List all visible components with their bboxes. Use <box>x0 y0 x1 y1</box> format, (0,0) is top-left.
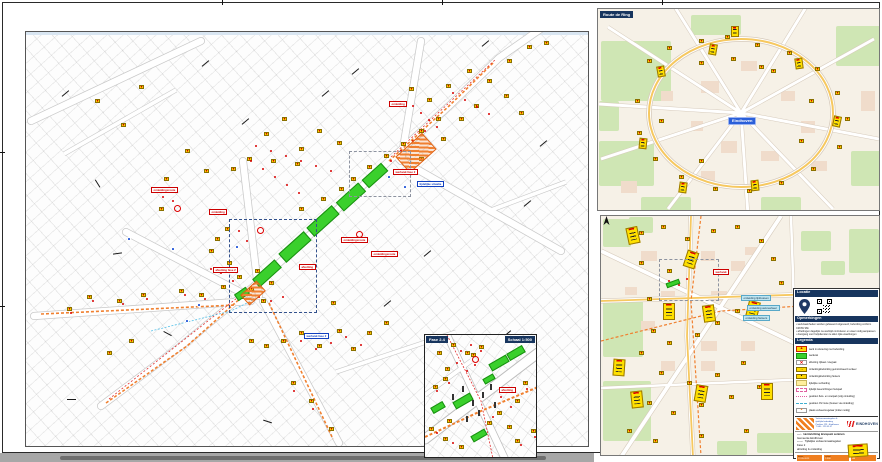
traffic-sign-marker <box>95 99 100 103</box>
traffic-light-marker <box>482 392 484 398</box>
traffic-sign-marker <box>679 175 684 179</box>
ring-map: Route de Ring Eindhoven <box>597 8 880 211</box>
traffic-sign-marker <box>653 439 658 443</box>
traffic-sign-marker <box>729 395 734 399</box>
traffic-sign-marker <box>725 35 730 39</box>
traffic-sign-marker <box>129 339 134 343</box>
barrier-marker <box>286 184 289 187</box>
traffic-sign-marker <box>651 329 656 333</box>
traffic-sign-marker <box>731 57 736 61</box>
barrier-marker <box>436 390 439 393</box>
traffic-sign-marker <box>497 411 502 415</box>
legend-item: werkvak <box>796 353 878 360</box>
inset-scale-label: Schaal 1:500 <box>505 336 535 343</box>
legend-item: •plaats verkeersregelaar (indien nodig) <box>796 407 878 414</box>
barrier-marker <box>300 160 303 163</box>
client-name: EINDHOVEN <box>856 422 878 426</box>
traffic-sign-marker <box>295 162 300 166</box>
pink-dash-icon <box>796 388 807 392</box>
traffic-sign-marker <box>639 351 644 355</box>
north-arrow-icon <box>601 216 612 227</box>
traffic-sign-marker <box>811 167 816 171</box>
traffic-sign-marker <box>699 159 704 163</box>
redx-icon: ✕ <box>796 360 807 365</box>
legend-item: ✕afzetting rijbaan / wegvak <box>796 359 878 366</box>
barrier-marker <box>146 298 149 301</box>
traffic-sign-marker <box>337 141 342 145</box>
omleiding-sign-marker <box>625 225 640 244</box>
closure-circle-marker <box>472 356 479 363</box>
map-annotation-label: omleiding fietsers <box>743 315 770 321</box>
traffic-sign-marker <box>713 187 718 191</box>
orange-dot-icon: • <box>796 408 807 413</box>
legend-item: •omleidingsbebording fietsers <box>796 373 878 380</box>
traffic-sign-marker <box>809 99 814 103</box>
traffic-sign-marker <box>779 281 784 285</box>
barrier-marker <box>210 268 213 271</box>
project-label: werk: <box>797 434 802 436</box>
traffic-light-marker <box>466 416 468 422</box>
work-zone <box>482 373 495 384</box>
traffic-sign-marker <box>445 367 450 371</box>
legend-item: ▲werk in uitvoering met bebording <box>796 346 878 353</box>
barrier-marker <box>520 444 523 447</box>
barrier-marker <box>345 336 348 339</box>
legend-item-label: tijdelijke verharding <box>809 382 830 385</box>
traffic-light-marker <box>490 384 492 390</box>
traffic-sign-marker <box>429 427 434 431</box>
traffic-sign-marker <box>249 339 254 343</box>
map-annotation-label: omleiding lijnbussen <box>741 295 771 301</box>
work-zone <box>506 345 526 361</box>
barrier-marker <box>285 155 288 158</box>
traffic-sign-marker <box>845 117 850 121</box>
traffic-sign-marker <box>291 381 296 385</box>
barrier-marker <box>122 303 125 306</box>
legend-item-label: gesloten OV-route (bussen via omleiding) <box>809 402 854 405</box>
street-name-mark <box>95 179 101 187</box>
traffic-sign-marker <box>659 371 664 375</box>
legend-item-label: plaats verkeersregelaar (indien nodig) <box>809 409 850 412</box>
barrier-marker <box>456 362 459 365</box>
route-shield-marker <box>185 319 189 323</box>
traffic-sign-marker <box>759 65 764 69</box>
traffic-sign-marker <box>735 309 740 313</box>
traffic-sign-marker <box>779 181 784 185</box>
legend-item: gesloten fiets- en voetpad (volg omleidi… <box>796 393 878 400</box>
street-name-mark <box>322 90 330 97</box>
traffic-sign-marker <box>139 85 144 89</box>
closure-circle-marker <box>174 205 181 212</box>
traffic-sign-marker <box>699 434 704 438</box>
legend-item-label: omleidingsbebording fietsers <box>809 375 840 378</box>
map-annotation-label: omleiding <box>209 209 227 215</box>
traffic-sign-marker <box>667 341 672 345</box>
map-annotation-label: omleiding <box>389 101 407 107</box>
traffic-sign-marker <box>639 261 644 265</box>
traffic-sign-marker <box>221 285 226 289</box>
traffic-sign-marker <box>687 381 692 385</box>
traffic-sign-marker <box>519 111 524 115</box>
notes-list: • werkzaamheden worden gefaseerd uitgevo… <box>796 323 878 337</box>
legend-item-label: afzetting rijbaan / wegvak <box>809 361 837 364</box>
traffic-sign-marker <box>321 197 326 201</box>
legend-column: Locatie Opmerkingen • werkzaamheden word… <box>793 288 880 459</box>
street-name-mark <box>540 140 548 147</box>
title-block-logos: Verkeersmaatregelen & tijdelijke bebordi… <box>795 417 878 432</box>
barrier-marker <box>184 294 187 297</box>
legenda-header: Legenda <box>795 338 878 345</box>
eindhoven-logo-icon <box>847 421 855 427</box>
traffic-sign-marker <box>667 46 672 50</box>
ring-marker-layer <box>598 9 879 210</box>
barrier-marker <box>204 298 207 301</box>
work-zone <box>470 428 487 442</box>
traffic-sign-marker <box>281 339 286 343</box>
traffic-sign-marker <box>433 385 438 389</box>
barrier-marker <box>464 99 467 102</box>
traffic-sign-marker <box>67 307 72 311</box>
barrier-marker <box>70 312 73 315</box>
barrier-marker <box>534 436 537 439</box>
barrier-marker <box>510 406 513 409</box>
traffic-sign-marker <box>755 43 760 47</box>
barrier-marker <box>300 340 303 343</box>
map-annotation-label: werkvak fase 2 <box>393 169 418 175</box>
traffic-sign-marker <box>215 237 220 241</box>
barrier-marker <box>315 165 318 168</box>
work-zone <box>488 355 509 372</box>
traffic-light-marker <box>452 394 454 400</box>
omleiding-sign-marker <box>794 57 803 69</box>
pink-dot-icon <box>796 396 807 397</box>
map-pin-icon <box>799 299 810 314</box>
barrier-marker <box>474 364 477 367</box>
traffic-sign-marker <box>635 99 640 103</box>
work-zone <box>430 400 446 413</box>
traffic-sign-marker <box>815 67 820 71</box>
company-address: Verkeersmaatregelen & tijdelijke bebordi… <box>816 418 845 428</box>
locatie-header: Locatie <box>795 290 878 297</box>
traffic-sign-marker <box>107 351 112 355</box>
omleiding-sign-marker <box>678 181 687 193</box>
traffic-sign-marker <box>185 149 190 153</box>
note-line: • werkzaamheden worden gefaseerd uitgevo… <box>796 323 878 330</box>
route-shield-marker <box>171 247 175 251</box>
barrier-marker <box>488 113 491 116</box>
traffic-sign-marker <box>264 132 269 136</box>
barrier-marker <box>298 192 301 195</box>
traffic-sign-marker <box>531 429 536 433</box>
fold-tick <box>662 0 663 5</box>
field-datum: datum12-05-2023 <box>796 454 823 462</box>
traffic-sign-marker <box>659 119 664 123</box>
traffic-sign-marker <box>647 297 652 301</box>
drawing-sheet: omleidingsrouteafzetting fase 2omleiding… <box>0 0 882 462</box>
street-name-mark <box>263 420 272 424</box>
traffic-sign-marker <box>647 401 652 405</box>
barrier-marker <box>436 126 439 129</box>
legend-item-label: werkvak <box>809 354 818 357</box>
sign-fiets-icon: • <box>796 374 807 379</box>
map-annotation-label: omleidingsroute <box>151 187 178 193</box>
traffic-sign-marker <box>467 69 472 73</box>
traffic-sign-marker <box>507 425 512 429</box>
company-line: T 040 - 123 45 67 <box>816 426 845 429</box>
traffic-sign-marker <box>159 207 164 211</box>
barrier-marker <box>172 200 175 203</box>
barrier-marker <box>315 348 318 351</box>
client-logo: EINDHOVEN <box>847 421 878 427</box>
traffic-sign-marker <box>459 117 464 121</box>
omleiding-sign-marker <box>638 137 647 149</box>
legend-item-label: werk in uitvoering met bebording <box>809 348 844 351</box>
omleiding-sign-marker <box>731 26 739 37</box>
traffic-sign-marker <box>544 41 549 45</box>
traffic-sign-marker <box>443 377 448 381</box>
street-name-mark <box>384 300 392 307</box>
opmerkingen-header: Opmerkingen <box>795 316 878 323</box>
traffic-sign-marker <box>771 69 776 73</box>
traffic-sign-marker <box>204 169 209 173</box>
traffic-sign-marker <box>653 157 658 161</box>
route-shield-marker <box>127 237 131 241</box>
ring-map-title: Route de Ring <box>600 11 633 18</box>
traffic-sign-marker <box>637 131 642 135</box>
legend-item-label: tijdelijk tweerichtingen fietspad <box>809 388 842 391</box>
map-annotation-label: werkvak fase 2 <box>304 333 329 339</box>
street-name-mark <box>524 200 532 207</box>
traffic-sign-marker <box>459 445 464 449</box>
traffic-sign-marker <box>209 249 214 253</box>
barrier-marker <box>480 350 483 353</box>
traffic-sign-marker <box>465 351 470 355</box>
traffic-sign-marker <box>282 117 287 121</box>
map-annotation-label: afzetting <box>299 264 316 270</box>
traffic-light-marker <box>472 400 474 406</box>
barrier-marker <box>500 396 503 399</box>
traffic-sign-marker <box>271 159 276 163</box>
barrier-marker <box>412 105 415 108</box>
cyan-dash-icon <box>796 403 807 404</box>
locatie-body <box>795 298 878 315</box>
traffic-light-marker <box>494 402 496 408</box>
traffic-sign-marker <box>447 419 452 423</box>
traffic-sign-marker <box>661 225 666 229</box>
example-omleiding-sign <box>848 443 869 457</box>
traffic-sign-marker <box>337 329 342 333</box>
traffic-sign-marker <box>441 137 446 141</box>
street-name-mark <box>242 118 250 125</box>
contractor-logo <box>796 418 814 430</box>
project-title: Herinrichting kruispunt centrum <box>803 433 844 436</box>
barrier-marker <box>270 150 273 153</box>
note-line: • doorgang voor hulpdiensten te allen ti… <box>796 333 878 336</box>
traffic-sign-marker <box>299 331 304 335</box>
traffic-sign-marker <box>741 361 746 365</box>
legend-list: ▲werk in uitvoering met bebordingwerkvak… <box>796 346 878 414</box>
traffic-sign-marker <box>759 239 764 243</box>
traffic-sign-marker <box>331 301 336 305</box>
traffic-sign-marker <box>837 145 842 149</box>
traffic-sign-marker <box>317 344 322 348</box>
traffic-sign-marker <box>715 321 720 325</box>
map-annotation-label: werkvak <box>713 269 729 275</box>
field-label: datum <box>798 456 821 458</box>
traffic-sign-marker <box>515 439 520 443</box>
traffic-sign-marker <box>479 345 484 349</box>
inset-phase-label: Fase 2.4 <box>426 336 448 343</box>
map-annotation-label: omleidingsroute <box>371 251 398 257</box>
barrier-marker <box>436 432 439 435</box>
traffic-sign-marker <box>317 129 322 133</box>
traffic-sign-marker <box>164 177 169 181</box>
map-annotation-label: omleiding autoverkeer <box>747 305 780 311</box>
traffic-sign-marker <box>699 61 704 65</box>
barrier-marker <box>250 160 253 163</box>
traffic-sign-marker <box>639 231 644 235</box>
fold-tick <box>442 0 443 5</box>
traffic-sign-marker <box>121 123 126 127</box>
barrier-marker <box>420 112 423 115</box>
traffic-sign-marker <box>771 257 776 261</box>
traffic-sign-marker <box>443 437 448 441</box>
traffic-sign-marker <box>427 98 432 102</box>
omleiding-sign-marker <box>663 303 675 320</box>
phase-inset-map: afzetting Fase 2.4 Schaal 1:500 <box>424 334 537 458</box>
street-name-mark <box>113 252 122 255</box>
qr-code <box>817 299 832 314</box>
street-name-mark <box>202 60 210 67</box>
paleyellow-icon <box>796 380 807 385</box>
traffic-sign-marker <box>711 229 716 233</box>
barrier-marker <box>312 408 315 411</box>
omleiding-sign-marker <box>630 390 644 408</box>
barrier-marker <box>262 168 265 171</box>
omleiding-sign-marker <box>612 358 625 376</box>
omleiding-sign-marker <box>761 383 773 400</box>
traffic-sign-marker <box>401 142 406 146</box>
barrier-marker <box>492 416 495 419</box>
omleiding-sign-marker <box>750 179 759 191</box>
traffic-sign-marker <box>647 59 652 63</box>
traffic-sign-marker <box>487 421 492 425</box>
barrier-marker <box>274 176 277 179</box>
map-annotation-label: afzetting fase 2 <box>213 267 238 273</box>
barrier-marker <box>360 344 363 347</box>
traffic-sign-marker <box>231 167 236 171</box>
barrier-marker <box>428 119 431 122</box>
inset-marker-layer: afzetting <box>425 335 536 457</box>
project-subject: Tijdelijke verkeersmaatregelen <box>805 440 841 443</box>
traffic-sign-marker <box>409 87 414 91</box>
barrier-marker <box>470 344 473 347</box>
traffic-sign-marker <box>436 117 441 121</box>
traffic-sign-marker <box>799 139 804 143</box>
traffic-sign-marker <box>487 79 492 83</box>
barrier-marker <box>466 370 469 373</box>
fold-tick <box>222 0 223 5</box>
street-name-mark <box>163 331 172 336</box>
traffic-sign-marker <box>179 289 184 293</box>
barrier-marker <box>424 130 427 133</box>
field-schaal: schaal1:500 <box>823 454 850 462</box>
barrier-marker <box>526 388 529 391</box>
traffic-sign-marker <box>735 225 740 229</box>
legend-item: gesloten OV-route (bussen via omleiding) <box>796 400 878 407</box>
field-label: schaal <box>825 456 848 458</box>
traffic-sign-marker <box>787 51 792 55</box>
legend-item: →omleidingsbebording gemotoriseerd verke… <box>796 366 878 373</box>
fold-tick <box>0 306 5 307</box>
traffic-sign-marker <box>685 237 690 241</box>
barrier-marker <box>293 390 296 393</box>
traffic-sign-marker <box>527 45 532 49</box>
barrier-marker <box>460 350 463 353</box>
traffic-light-marker <box>478 410 480 416</box>
street-name-mark <box>482 40 490 47</box>
traffic-sign-marker <box>627 429 632 433</box>
barrier-marker <box>162 196 165 199</box>
legend-item-label: gesloten fiets- en voetpad (volg omleidi… <box>809 395 855 398</box>
fold-tick <box>0 152 5 153</box>
traffic-sign-marker <box>744 429 749 433</box>
detail-extent-rectangle <box>659 259 719 301</box>
traffic-sign-marker <box>141 293 146 297</box>
traffic-light-marker <box>462 386 464 392</box>
omleiding-sign-marker <box>708 43 718 55</box>
sign-auto-icon: → <box>796 367 807 372</box>
traffic-sign-marker <box>299 207 304 211</box>
traffic-sign-marker <box>671 411 676 415</box>
traffic-sign-marker <box>384 321 389 325</box>
traffic-sign-marker <box>87 295 92 299</box>
traffic-sign-marker <box>264 344 269 348</box>
traffic-sign-marker <box>699 39 704 43</box>
map-annotation-label: afzetting <box>499 387 516 393</box>
ring-center-label: Eindhoven <box>728 117 756 125</box>
map-annotation-label: omleidingsroute <box>341 237 368 243</box>
barrier-marker <box>330 170 333 173</box>
street-name-mark <box>62 90 70 97</box>
legend-item-label: omleidingsbebording gemotoriseerd verkee… <box>809 368 857 371</box>
traffic-sign-marker <box>507 59 512 63</box>
barrier-marker <box>330 342 333 345</box>
legend-item: tijdelijke verharding <box>796 380 878 387</box>
traffic-sign-marker <box>515 399 520 403</box>
traffic-sign-marker <box>309 399 314 403</box>
barrier-marker <box>255 145 258 148</box>
street-name-mark <box>67 399 76 400</box>
traffic-sign-marker <box>835 91 840 95</box>
j16-icon: ▲ <box>796 346 807 351</box>
traffic-sign-marker <box>504 94 509 98</box>
traffic-sign-marker <box>299 147 304 151</box>
traffic-sign-marker <box>699 403 704 407</box>
work-zone <box>452 393 473 410</box>
barrier-marker <box>448 382 451 385</box>
omleiding-sign-marker <box>832 115 842 127</box>
traffic-sign-marker <box>199 293 204 297</box>
legend-item: tijdelijk tweerichtingen fietspad <box>796 387 878 394</box>
route-shield-marker <box>197 303 201 307</box>
omleiding-sign-marker <box>694 384 709 403</box>
project-label: omvat: <box>797 441 803 443</box>
street-name-mark <box>352 68 360 75</box>
traffic-sign-marker <box>446 84 451 88</box>
omleiding-sign-marker <box>656 65 666 77</box>
traffic-sign-marker <box>367 331 372 335</box>
